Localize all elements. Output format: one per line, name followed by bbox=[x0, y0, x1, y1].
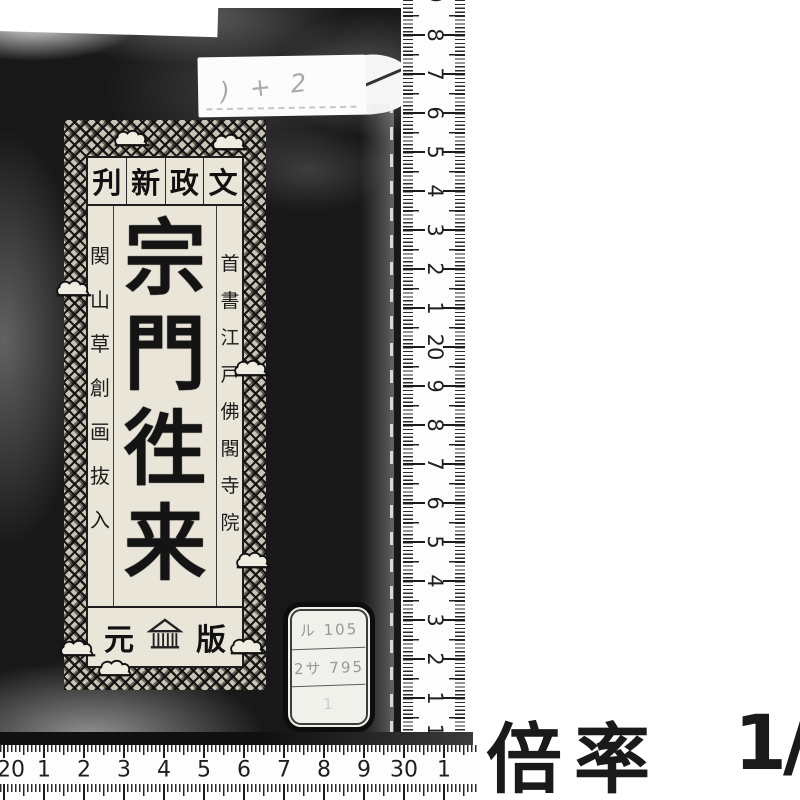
ruler-cm-ticks bbox=[403, 0, 425, 738]
ruler-cm-ticks bbox=[0, 745, 479, 758]
scanned-book-photo: ) + 2 文政新刋 宗門徃来 首書江戸佛閣寺院 関山草創画抜入 元 版 bbox=[0, 0, 800, 800]
ruler-cm-ticks bbox=[0, 784, 479, 800]
scan-edge-highlight bbox=[0, 0, 219, 37]
slip-right-note: 首書江戸佛閣寺院 bbox=[218, 246, 242, 542]
magnification-slash: / bbox=[783, 694, 800, 787]
book-bottom-shadow bbox=[0, 732, 473, 745]
slip-main-area: 宗門徃来 首書江戸佛閣寺院 関山草創画抜入 bbox=[88, 206, 242, 606]
call-number-label: ル 105 2サ 795 1 bbox=[283, 602, 375, 732]
cloud-motif-icon bbox=[54, 278, 94, 298]
call-number-row: ル 105 bbox=[291, 610, 366, 649]
cloud-motif-icon bbox=[96, 658, 136, 678]
call-number-row: 1 bbox=[291, 684, 366, 724]
vertical-ruler: 9876543212098765432110 bbox=[401, 0, 467, 738]
magnification-value: 1 bbox=[734, 698, 787, 787]
publisher-char-right: 版 bbox=[196, 615, 226, 659]
slip-publisher-row: 元 版 bbox=[88, 606, 242, 666]
binding-stitch-line bbox=[390, 100, 393, 748]
publisher-seal-icon bbox=[146, 618, 184, 656]
cloud-motif-icon bbox=[112, 128, 152, 148]
title-slip-panel: 文政新刋 宗門徃来 首書江戸佛閣寺院 関山草創画抜入 元 版 bbox=[86, 156, 244, 668]
call-number-grid: ル 105 2サ 795 1 bbox=[290, 609, 368, 725]
cloud-motif-icon bbox=[228, 636, 268, 656]
cloud-motif-icon bbox=[232, 358, 272, 378]
cloud-motif-icon bbox=[58, 638, 98, 658]
publisher-char-left: 元 bbox=[104, 615, 134, 659]
cloud-motif-icon bbox=[210, 132, 250, 152]
top-label-text: ) + 2 bbox=[219, 68, 314, 107]
cloud-motif-icon bbox=[234, 550, 274, 570]
slip-era-header: 文政新刋 bbox=[88, 158, 242, 206]
call-number-row: 2サ 795 bbox=[291, 646, 366, 686]
top-paper-label: ) + 2 bbox=[197, 55, 366, 118]
slip-title: 宗門徃来 bbox=[118, 212, 212, 592]
magnification-label: 倍率 bbox=[486, 698, 662, 800]
horizontal-ruler: 20123456789301 bbox=[0, 745, 479, 800]
title-slip: 文政新刋 宗門徃来 首書江戸佛閣寺院 関山草創画抜入 元 版 bbox=[64, 120, 266, 690]
